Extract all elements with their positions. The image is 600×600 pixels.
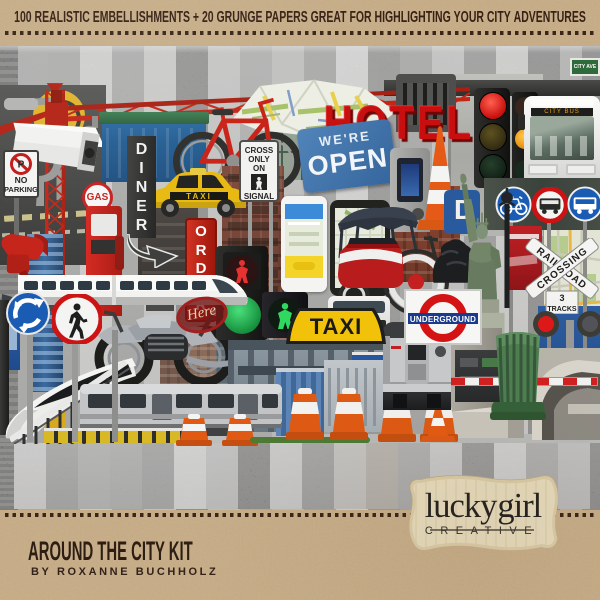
svg-text:CREATIVE: CREATIVE [425,525,539,537]
svg-text:PARKING: PARKING [4,185,38,194]
svg-text:TAXI: TAXI [310,314,362,339]
svg-text:TAXI: TAXI [186,192,212,201]
svg-text:CROSS: CROSS [245,146,274,155]
svg-text:ON: ON [253,164,265,173]
svg-text:luckygirl: luckygirl [425,487,542,525]
svg-text:ONLY: ONLY [248,155,270,164]
svg-text:SIGNAL: SIGNAL [244,192,274,201]
svg-text:P: P [18,160,25,171]
svg-text:UNDERGROUND: UNDERGROUND [410,315,476,324]
svg-text:3: 3 [559,293,564,303]
svg-text:NO: NO [15,175,28,185]
